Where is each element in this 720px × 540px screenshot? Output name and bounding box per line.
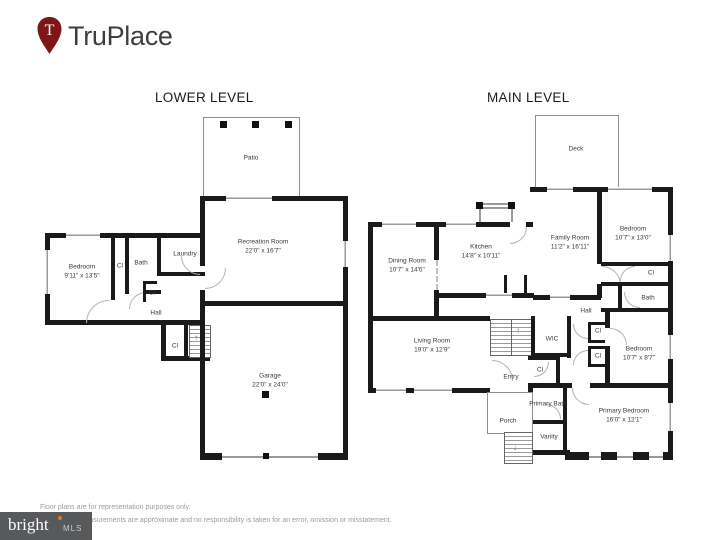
railing: [483, 203, 508, 205]
bright-mls-logo: bright MLS: [0, 512, 92, 540]
post: [220, 121, 227, 128]
wall: [45, 320, 205, 325]
room-label-primary-bedroom: Primary Bedroom 16'0" x 12'1": [599, 407, 650, 426]
wall: [588, 322, 591, 342]
window: [414, 388, 452, 393]
wall: [111, 238, 115, 300]
wall: [605, 312, 610, 385]
window: [547, 187, 573, 192]
window: [617, 456, 633, 458]
disclaimer-line-2: and measurements are approximate and no …: [66, 517, 392, 524]
brand-name: TruPlace: [68, 21, 173, 52]
room-label-cl: Cl: [537, 365, 543, 374]
bright-mls-dot-icon: [58, 516, 62, 520]
wall: [504, 275, 507, 293]
room-label-hall: Hall: [580, 306, 591, 315]
room-label-vanity: Vanity: [540, 432, 558, 441]
garage-door: [222, 456, 318, 458]
wall: [633, 452, 649, 460]
door-arc: [205, 268, 226, 289]
window: [589, 456, 601, 458]
room-label-dining: Dining Room 10'7" x 14'6": [388, 257, 426, 276]
wall: [524, 275, 527, 293]
wall: [567, 316, 571, 358]
window: [66, 233, 100, 238]
room-label-cl: Cl: [172, 341, 178, 350]
room-label-primary-bath: Primary Bath: [529, 399, 567, 408]
wall: [528, 450, 570, 455]
door-arc: [510, 227, 527, 244]
wall: [663, 452, 673, 460]
room-label-wic: WIC: [546, 334, 559, 343]
door-arc: [620, 266, 635, 281]
room-label-cl: Cl: [595, 351, 601, 360]
wall: [601, 282, 673, 286]
railing: [483, 207, 508, 209]
room-label-garage: Garage 22'0" x 24'0": [252, 372, 288, 391]
wall: [601, 308, 673, 312]
window: [668, 403, 673, 431]
room-label-hall: Hall: [150, 308, 161, 317]
stairs: [504, 432, 533, 464]
wall: [368, 227, 373, 392]
wall: [157, 238, 161, 276]
window: [668, 235, 673, 261]
wall: [200, 306, 205, 458]
door-arc: [573, 324, 588, 339]
post: [252, 121, 259, 128]
window: [649, 456, 663, 458]
stairs: [490, 319, 512, 356]
room-label-bath: Bath: [134, 258, 147, 267]
wall: [125, 238, 129, 294]
truplace-logo: T TruPlace: [36, 16, 173, 56]
wall: [318, 453, 348, 460]
room-label-laundry: Laundry: [173, 249, 197, 258]
truplace-pin-icon: T: [36, 16, 63, 56]
wall: [531, 316, 535, 356]
room-label-bath: Bath: [641, 293, 654, 302]
wall: [434, 293, 534, 298]
window: [382, 222, 416, 227]
stairs-down-arrow-icon: ↓: [513, 443, 517, 452]
room-label-living: Living Room 19'0" x 12'9": [414, 337, 450, 356]
wall: [184, 325, 188, 356]
main-level-title: MAIN LEVEL: [487, 90, 570, 105]
room-label-cl: Cl: [595, 326, 601, 335]
stairs-up-arrow-icon: ↑: [194, 333, 198, 342]
room-label-bedroom2: Bedroom 10'7" x 8'7": [623, 345, 655, 364]
wall: [200, 301, 348, 306]
wall: [597, 192, 602, 264]
wall: [143, 281, 146, 302]
wall: [528, 420, 567, 424]
railing: [479, 209, 481, 222]
post: [262, 391, 269, 398]
room-label-bedroom: Bedroom 9'11" x 13'5": [64, 263, 99, 282]
room-label-family: Family Room 11'2" x 16'11": [551, 234, 589, 253]
porch-outline: [487, 392, 533, 434]
floor-plan-page: T TruPlace LOWER LEVEL MAIN LEVEL: [0, 0, 720, 540]
bright-mls-sub: MLS: [63, 524, 82, 533]
window: [45, 250, 50, 294]
wall: [601, 452, 617, 460]
room-label-kitchen: Kitchen 14'8" x 10'11": [462, 243, 501, 262]
window: [376, 388, 406, 393]
window: [446, 222, 476, 227]
door-arc: [573, 350, 588, 365]
door-arc: [572, 388, 589, 405]
stairs: [511, 319, 533, 356]
wall: [368, 316, 490, 321]
wall: [143, 281, 157, 284]
wall: [200, 196, 348, 201]
wall: [200, 453, 222, 460]
wall: [565, 452, 589, 460]
post: [508, 202, 515, 209]
door-arc: [86, 300, 109, 323]
room-label-patio: Patio: [244, 153, 259, 162]
window: [608, 187, 652, 192]
disclaimer-line-1: Floor plans are for representation purpo…: [40, 504, 190, 511]
wall: [434, 227, 439, 260]
window: [343, 241, 348, 267]
room-label-cl: Cl: [149, 288, 155, 297]
wall: [528, 383, 673, 388]
room-label-cl: Cl: [117, 261, 123, 270]
room-label-bedroom1: Bedroom 10'7" x 13'0": [615, 225, 651, 244]
window: [226, 196, 272, 201]
pin-letter: T: [45, 22, 55, 39]
bright-mls-brand: bright: [8, 515, 49, 535]
post: [285, 121, 292, 128]
lower-level-title: LOWER LEVEL: [155, 90, 254, 105]
post: [476, 202, 483, 209]
room-label-porch: Porch: [500, 416, 517, 425]
window: [668, 335, 673, 359]
room-label-entry: Entry: [503, 372, 518, 381]
room-label-cl: Cl: [648, 268, 654, 277]
post: [263, 453, 269, 459]
opening-dashed: [436, 260, 438, 290]
window: [486, 293, 512, 298]
room-label-deck: Deck: [569, 144, 584, 153]
railing: [511, 209, 513, 222]
stairs-up-arrow-icon: ↑: [516, 326, 520, 335]
door-arc: [610, 328, 627, 345]
window: [550, 295, 570, 300]
wall: [343, 306, 348, 458]
door-arc: [624, 292, 640, 308]
room-label-recreation: Recreation Room 22'0" x 16'7": [238, 238, 289, 257]
wall: [200, 201, 205, 306]
wall: [601, 262, 673, 266]
wall: [588, 346, 591, 366]
